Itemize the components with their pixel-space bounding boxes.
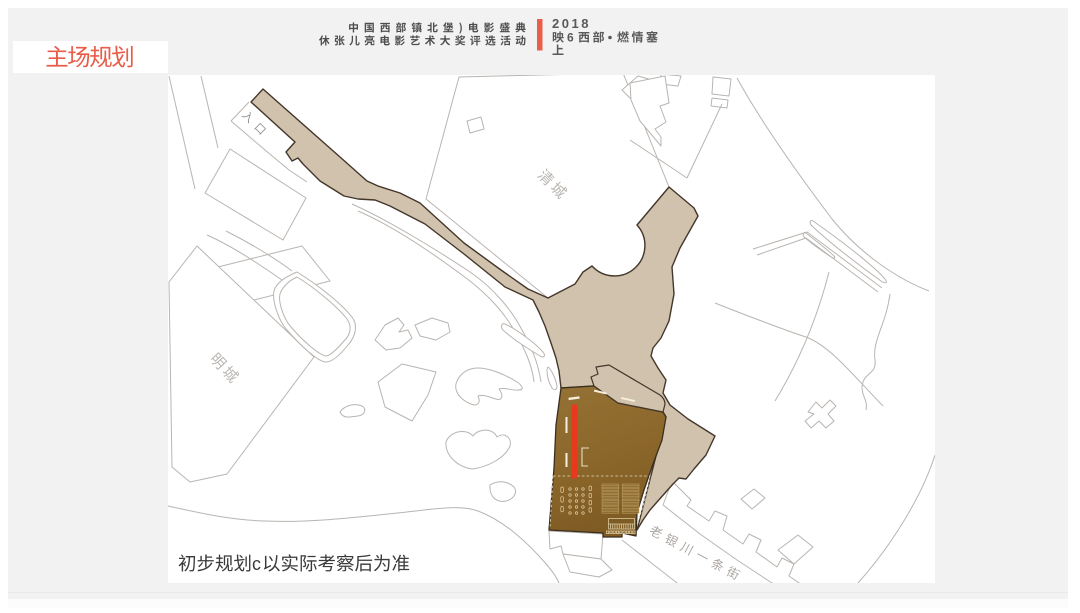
svg-text:6: 6 xyxy=(567,31,574,45)
svg-text:2018: 2018 xyxy=(552,16,591,31)
svg-text:c: c xyxy=(252,554,261,574)
